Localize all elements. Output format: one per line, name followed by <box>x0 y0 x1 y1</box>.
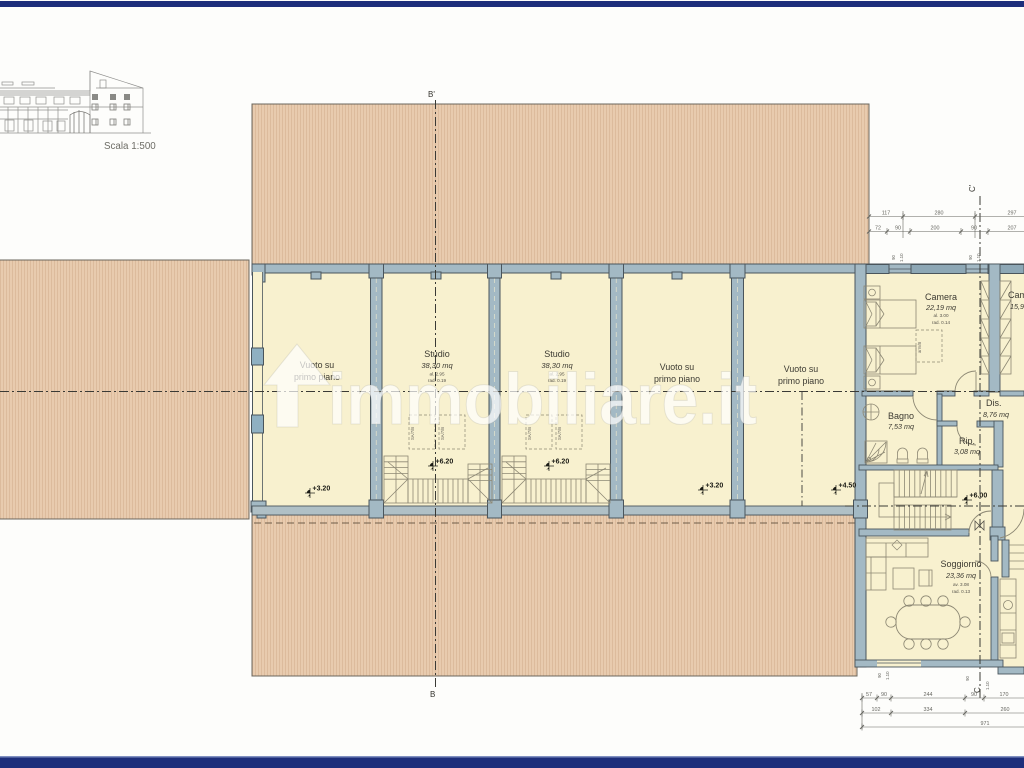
svg-text:3,08 mq: 3,08 mq <box>954 447 980 456</box>
svg-text:90: 90 <box>971 226 977 232</box>
svg-text:102: 102 <box>872 707 881 713</box>
svg-text:1.10: 1.10 <box>885 671 890 680</box>
svg-text:23,36 mq: 23,36 mq <box>945 571 976 580</box>
svg-text:90: 90 <box>971 692 977 698</box>
svg-text:Bagno: Bagno <box>888 411 914 421</box>
svg-text:Studio: Studio <box>424 349 450 359</box>
svg-text:90: 90 <box>968 255 973 260</box>
svg-text:Camera: Camera <box>925 292 957 302</box>
svg-text:Dis.: Dis. <box>986 398 1002 408</box>
svg-text:+3.20: +3.20 <box>706 483 724 490</box>
svg-text:arm/B: arm/B <box>917 342 922 353</box>
svg-text:+3.20: +3.20 <box>313 486 331 493</box>
svg-text:Camera: Camera <box>1008 290 1024 300</box>
svg-text:Scala 1:500: Scala 1:500 <box>104 141 156 152</box>
svg-text:334: 334 <box>924 707 933 713</box>
svg-text:immobiliare.it: immobiliare.it <box>328 360 757 440</box>
svg-text:260: 260 <box>1001 707 1010 713</box>
svg-text:200: 200 <box>931 226 940 232</box>
svg-text:+4.50: +4.50 <box>839 483 857 490</box>
svg-text:90: 90 <box>877 673 882 678</box>
svg-text:primo piano: primo piano <box>778 376 824 386</box>
svg-text:244: 244 <box>924 692 933 698</box>
svg-text:av. 3.08: av. 3.08 <box>953 582 969 587</box>
svg-text:B: B <box>430 690 435 699</box>
svg-text:1.10: 1.10 <box>899 253 904 262</box>
svg-text:22,19 mq: 22,19 mq <box>925 303 956 312</box>
svg-text:1.10: 1.10 <box>985 681 990 690</box>
svg-text:280: 280 <box>935 211 944 217</box>
svg-text:+6.00: +6.00 <box>970 493 988 500</box>
svg-text:1.10: 1.10 <box>976 253 981 262</box>
svg-text:90: 90 <box>881 692 887 698</box>
svg-text:B': B' <box>428 90 435 99</box>
svg-text:8,76 mq: 8,76 mq <box>983 410 1009 419</box>
svg-text:117: 117 <box>882 211 891 217</box>
svg-text:971: 971 <box>981 721 990 727</box>
svg-text:90: 90 <box>891 255 896 260</box>
svg-text:170: 170 <box>1000 692 1009 698</box>
svg-text:+6.20: +6.20 <box>552 459 570 466</box>
svg-text:Rip.: Rip. <box>959 436 975 446</box>
svg-text:57: 57 <box>866 692 872 698</box>
svg-text:rad. 0.13: rad. 0.13 <box>952 589 971 594</box>
svg-text:al. 3.00: al. 3.00 <box>933 313 949 318</box>
svg-text:Vuoto su: Vuoto su <box>784 364 819 374</box>
svg-text:rad. 0.14: rad. 0.14 <box>932 320 951 325</box>
svg-text:72: 72 <box>875 226 881 232</box>
svg-text:90: 90 <box>895 226 901 232</box>
svg-text:Soggiorno: Soggiorno <box>940 559 981 569</box>
svg-text:Studio: Studio <box>544 349 570 359</box>
svg-text:207: 207 <box>1008 226 1017 232</box>
svg-text:C': C' <box>968 184 977 192</box>
svg-text:90: 90 <box>965 676 970 681</box>
svg-text:7,53 mq: 7,53 mq <box>888 422 914 431</box>
svg-text:+6.20: +6.20 <box>436 459 454 466</box>
svg-text:15,96: 15,96 <box>1010 302 1024 311</box>
svg-text:297: 297 <box>1008 211 1017 217</box>
